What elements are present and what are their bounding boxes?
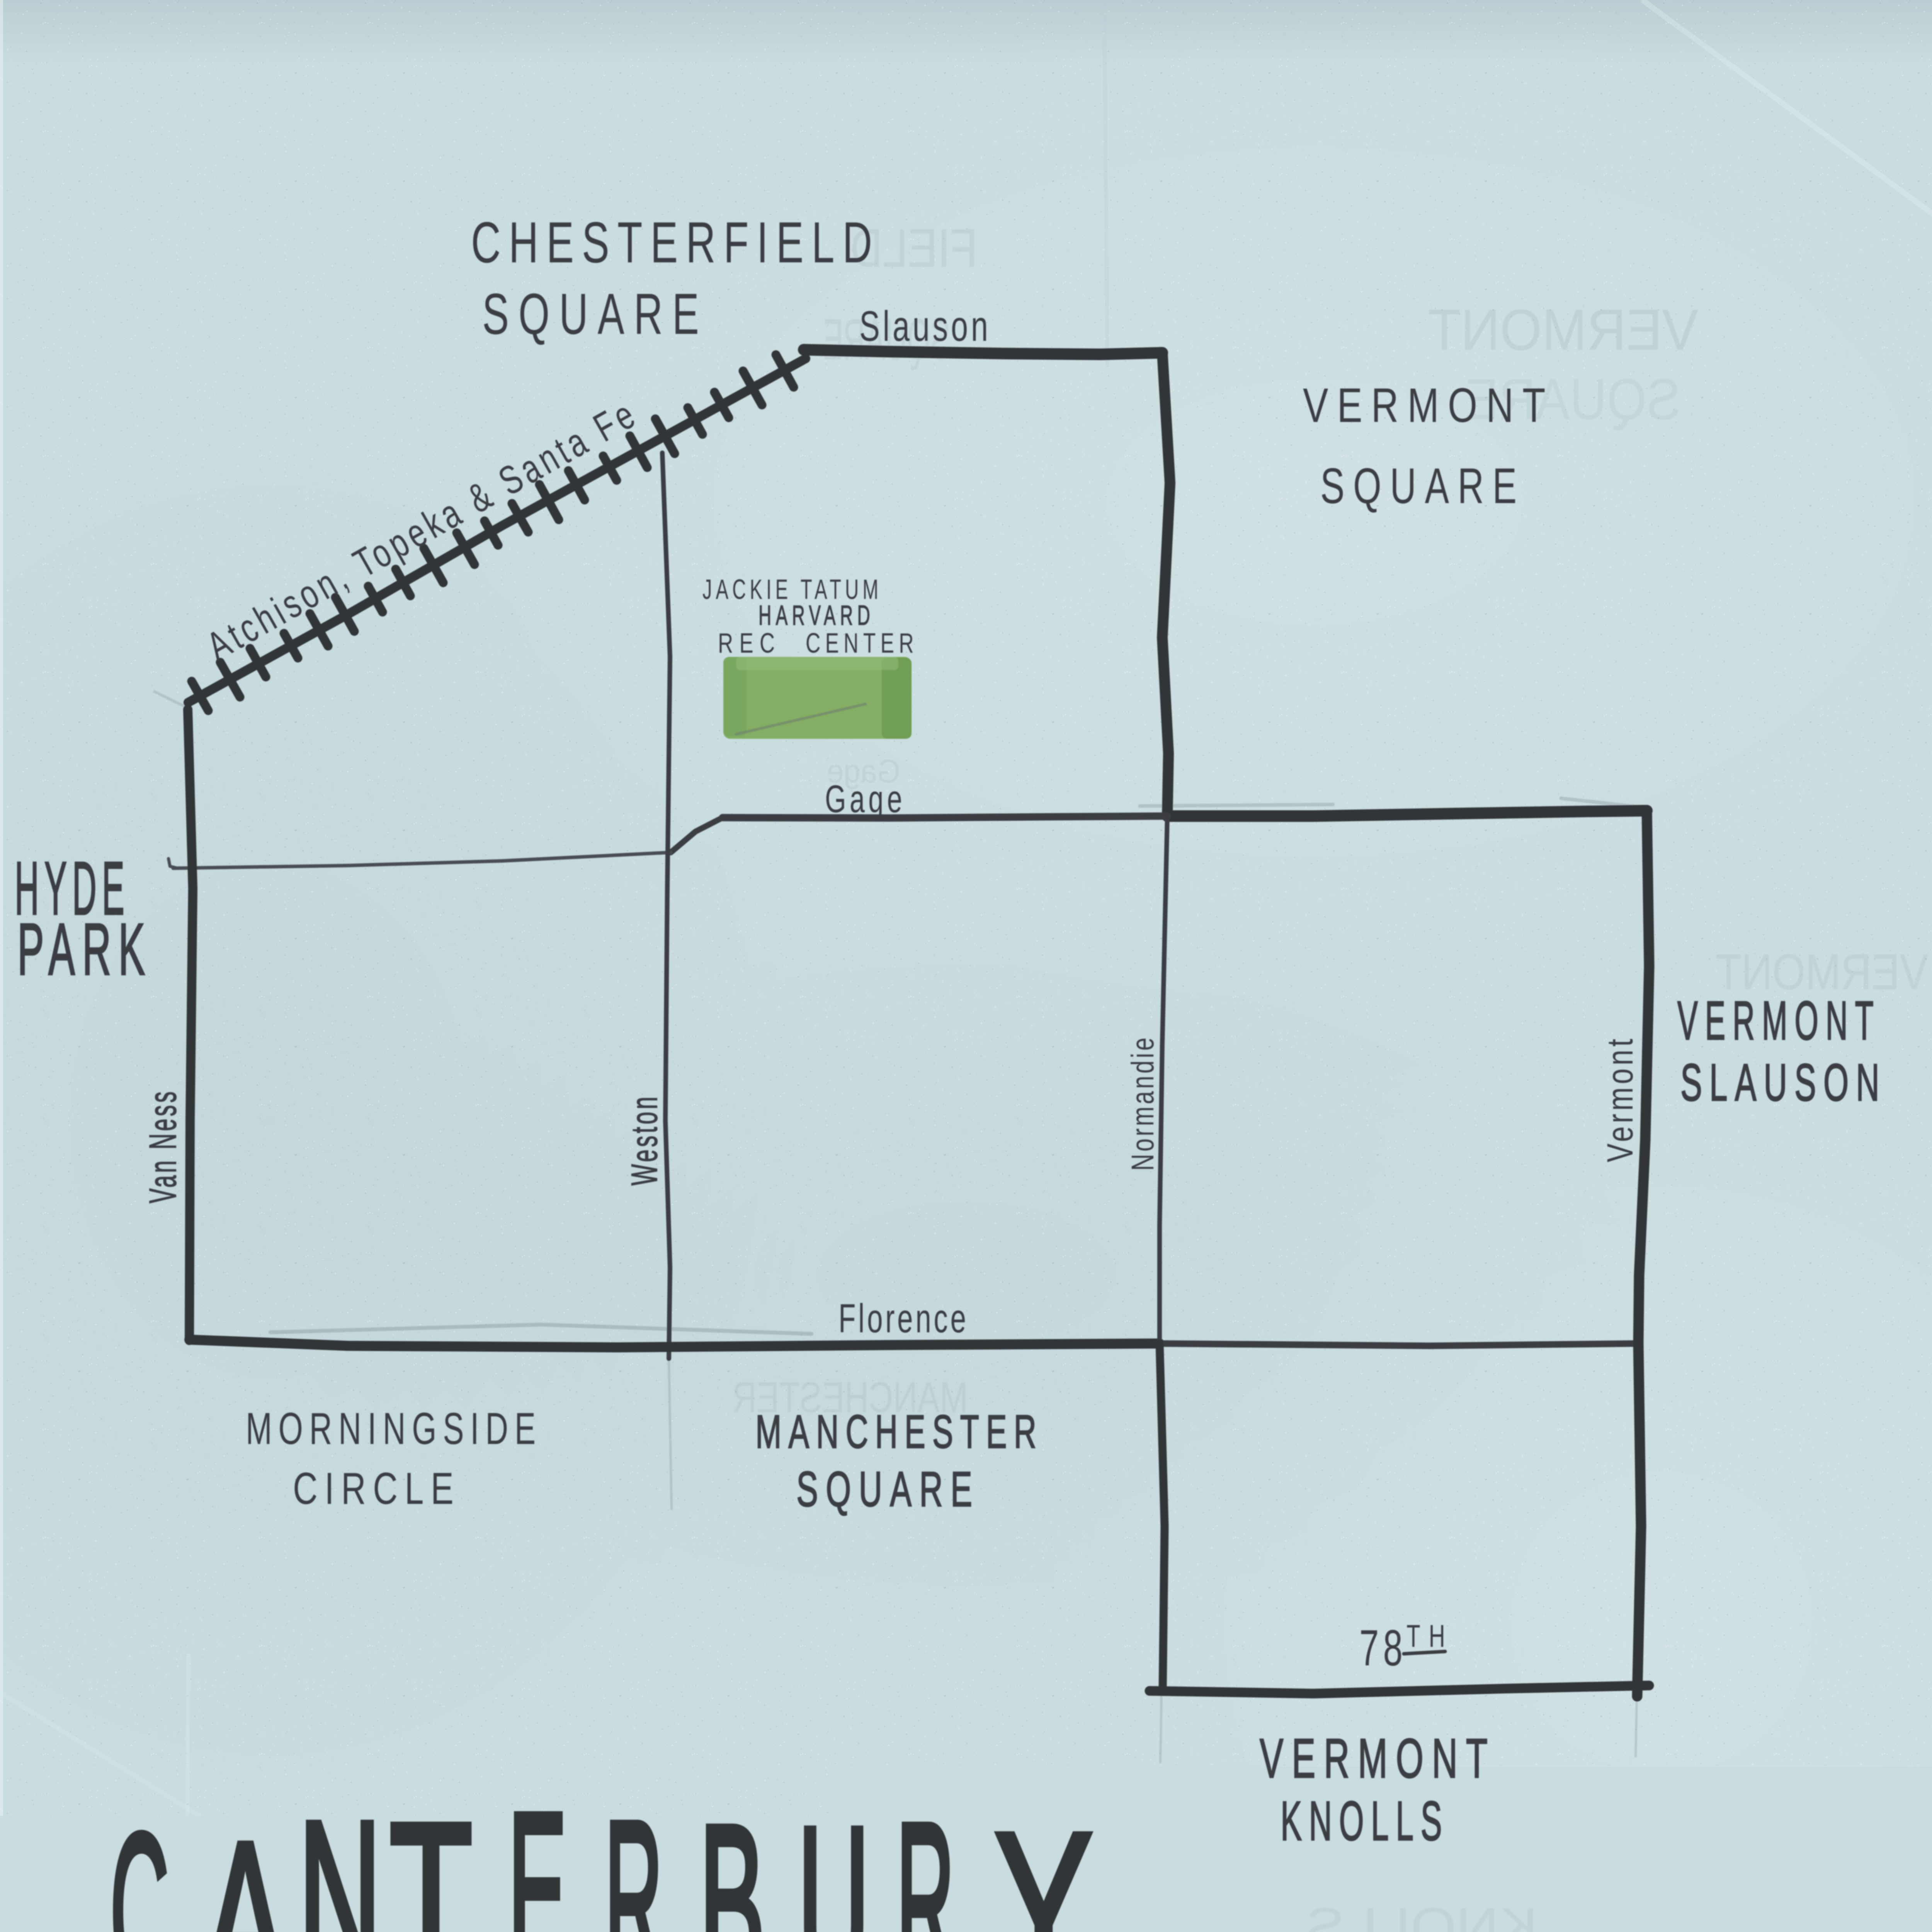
svg-text:T: T bbox=[389, 1777, 473, 1932]
svg-text:A: A bbox=[204, 1796, 287, 1932]
svg-text:MORNINGSIDE: MORNINGSIDE bbox=[246, 1404, 536, 1454]
svg-text:VERMONT: VERMONT bbox=[1260, 1727, 1488, 1789]
svg-text:R: R bbox=[896, 1777, 954, 1932]
svg-text:U: U bbox=[798, 1781, 869, 1932]
svg-text:KNOLLS: KNOLLS bbox=[1306, 1896, 1538, 1932]
svg-text:Y: Y bbox=[995, 1787, 1092, 1932]
svg-text:E: E bbox=[508, 1766, 567, 1932]
svg-text:REC: REC bbox=[718, 628, 775, 659]
svg-text:MANCHESTER: MANCHESTER bbox=[755, 1405, 1036, 1458]
svg-text:B: B bbox=[699, 1779, 765, 1932]
svg-text:Normandie: Normandie bbox=[1125, 1037, 1160, 1171]
svg-text:N: N bbox=[298, 1776, 381, 1932]
svg-text:VERMONT: VERMONT bbox=[1303, 378, 1546, 432]
svg-text:VERMONT: VERMONT bbox=[1677, 990, 1874, 1051]
svg-text:VERMONT: VERMONT bbox=[1428, 297, 1698, 362]
svg-text:R: R bbox=[605, 1775, 663, 1932]
svg-text:C: C bbox=[110, 1787, 169, 1932]
svg-text:Gage: Gage bbox=[825, 778, 902, 821]
svg-text:Van Ness: Van Ness bbox=[142, 1092, 184, 1203]
svg-text:CHESTERFIELD: CHESTERFIELD bbox=[471, 210, 872, 275]
